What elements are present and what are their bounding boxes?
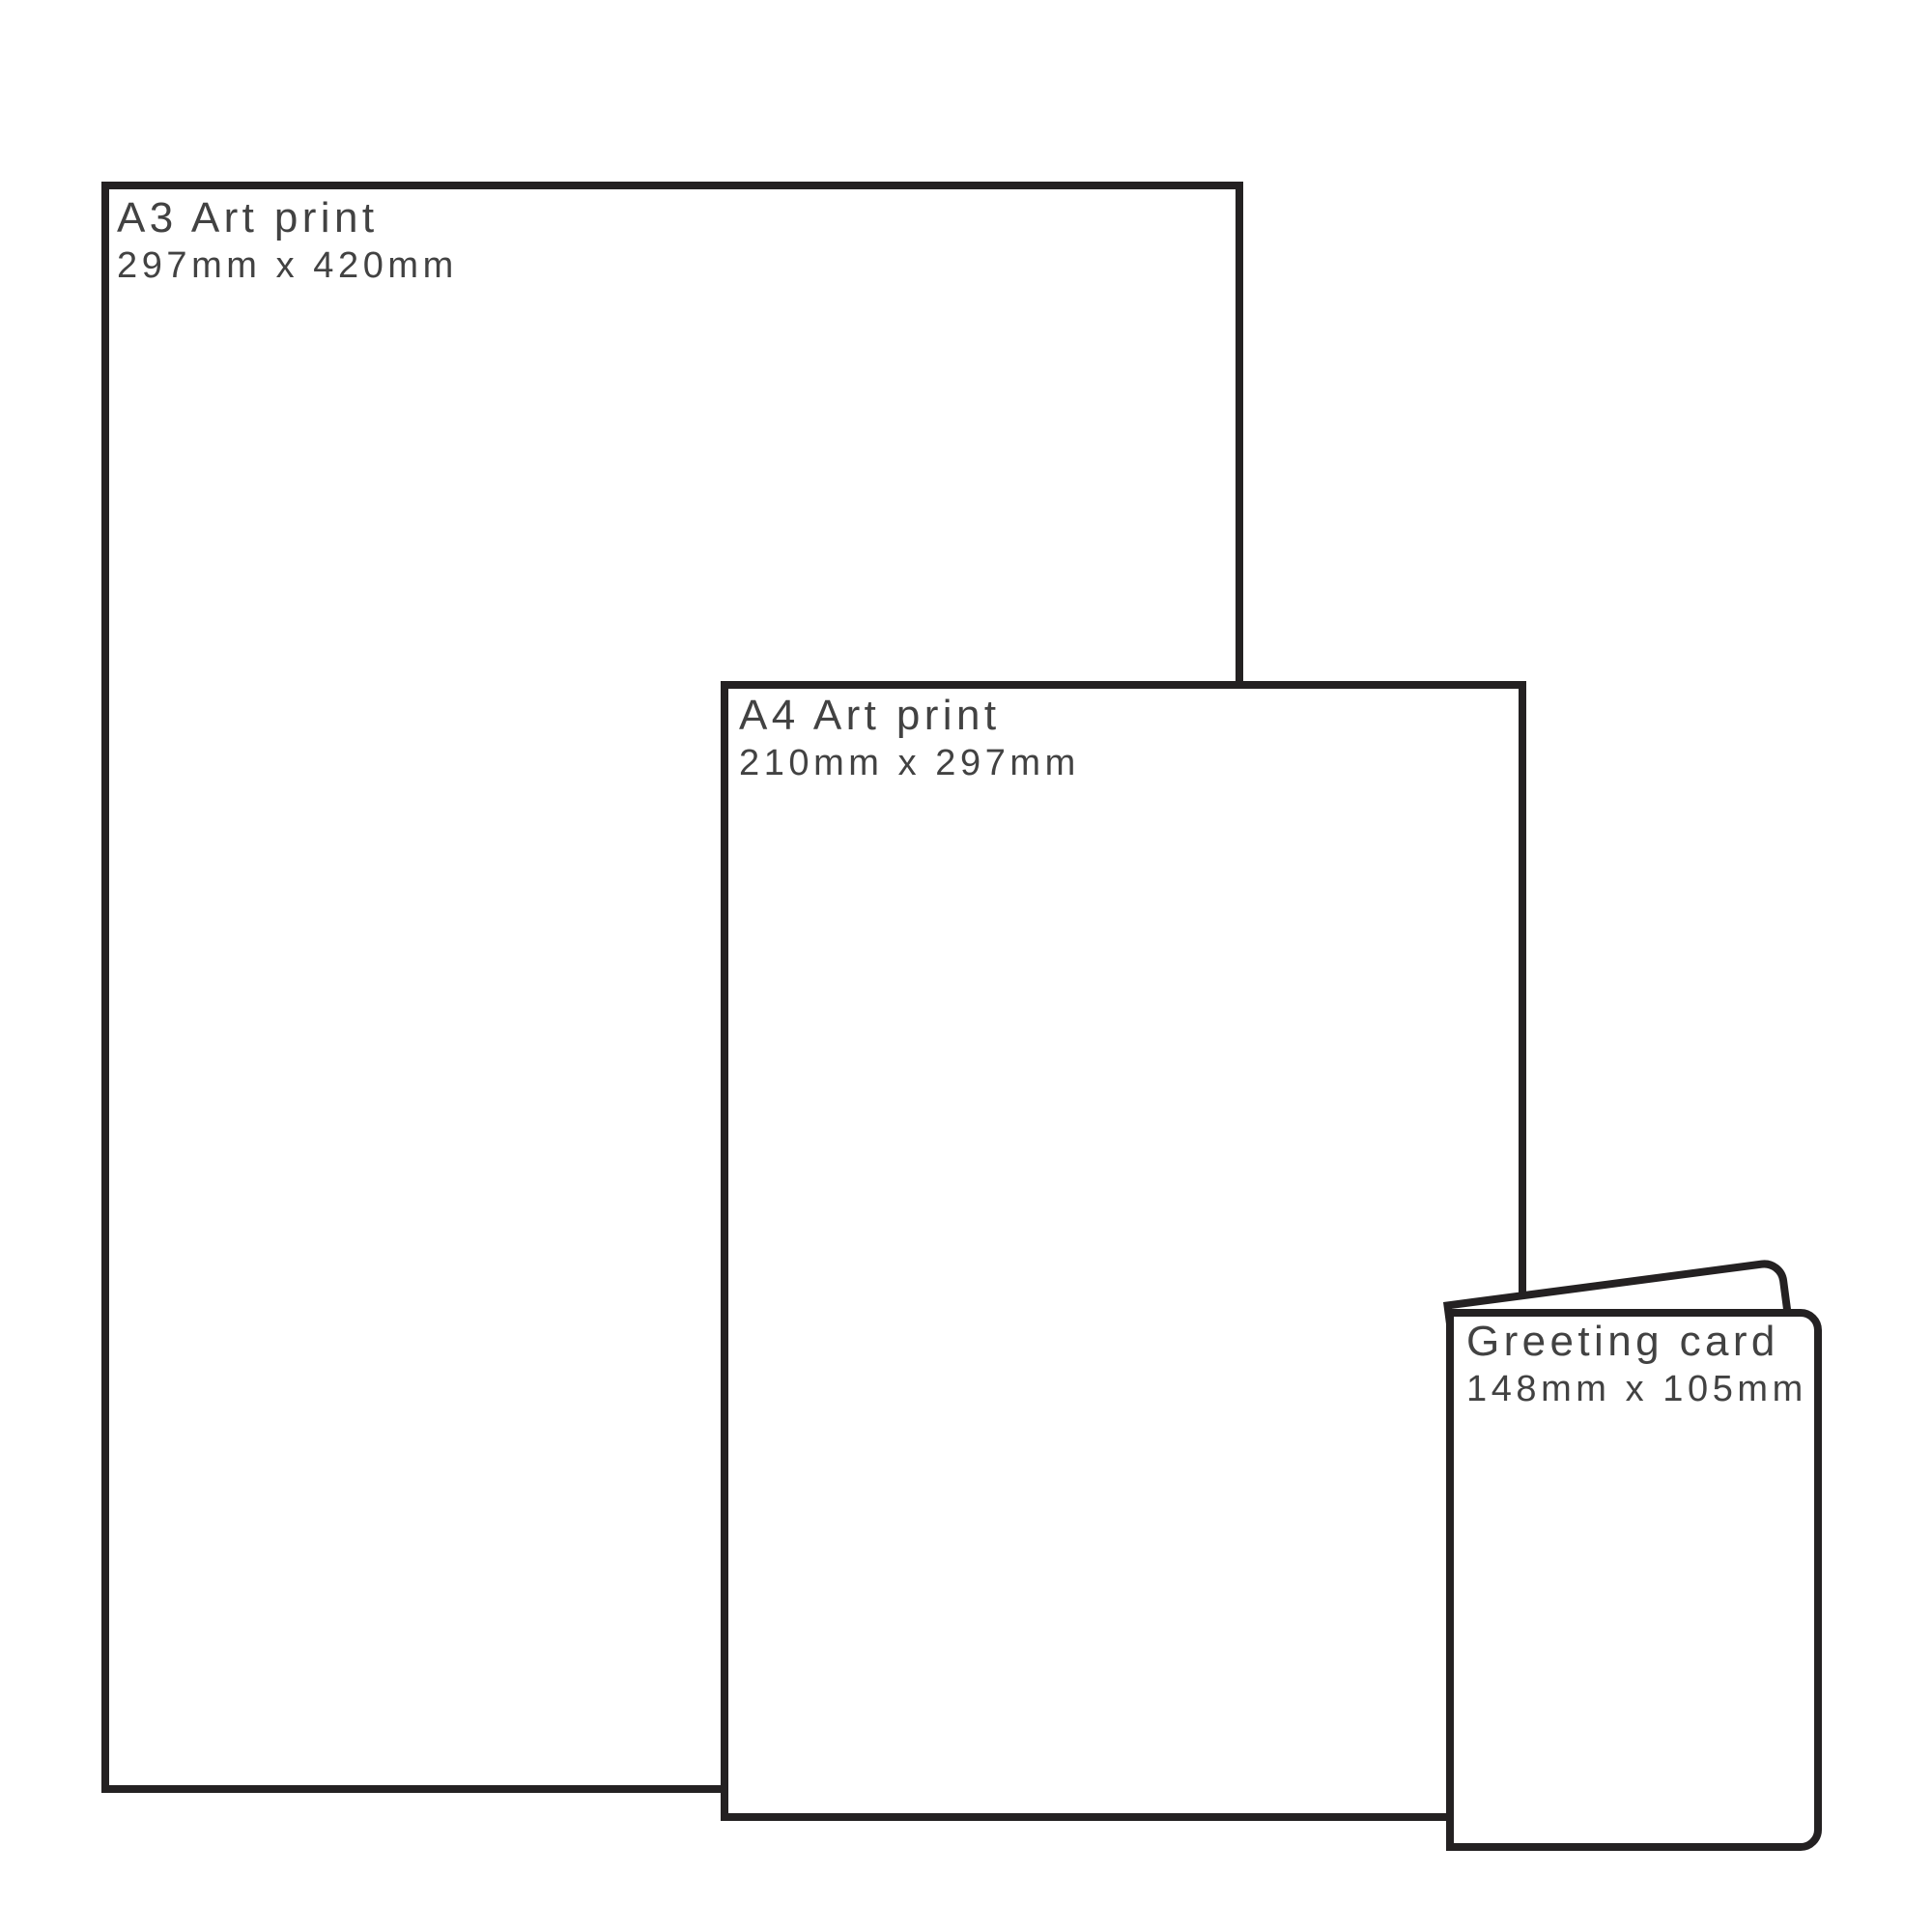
greeting-card-label: Greeting card 148mm x 105mm [1466,1317,1807,1411]
print-size-comparison-diagram: A3 Art print 297mm x 420mm A4 Art print … [0,0,1932,1932]
a3-title: A3 Art print [117,193,458,243]
a4-dimensions: 210mm x 297mm [739,741,1080,785]
a3-label: A3 Art print 297mm x 420mm [117,193,458,288]
a4-sheet: A4 Art print 210mm x 297mm [721,681,1526,1821]
a3-dimensions: 297mm x 420mm [117,243,458,288]
greeting-card-dimensions: 148mm x 105mm [1466,1367,1807,1411]
a4-title: A4 Art print [739,691,1080,741]
a4-label: A4 Art print 210mm x 297mm [739,691,1080,785]
greeting-card-front: Greeting card 148mm x 105mm [1446,1309,1822,1851]
greeting-card-title: Greeting card [1466,1317,1807,1367]
